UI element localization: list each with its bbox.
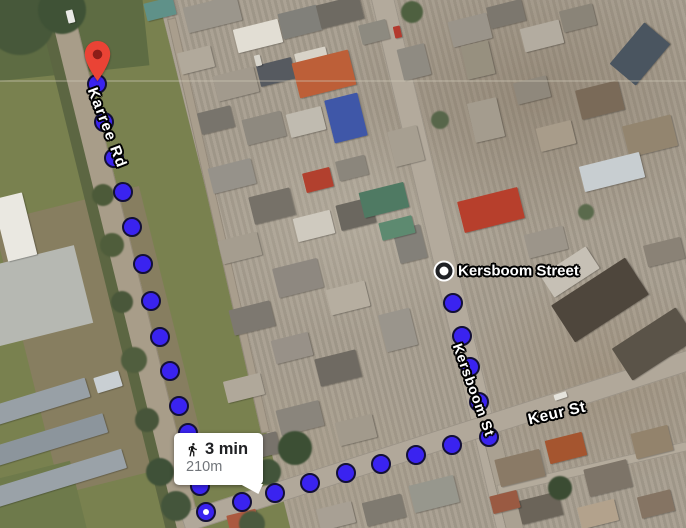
- route-dot: [232, 492, 252, 512]
- tree: [100, 233, 124, 257]
- destination-pin-icon[interactable]: [84, 41, 111, 81]
- route-turn-dot: [196, 502, 216, 522]
- tree: [401, 1, 423, 23]
- route-dot: [371, 454, 391, 474]
- tree: [161, 491, 191, 521]
- poi-label-kersboom-street[interactable]: Kersboom Street: [458, 263, 579, 280]
- route-origin-marker[interactable]: [436, 263, 453, 280]
- tree: [121, 347, 147, 373]
- route-dot: [336, 463, 356, 483]
- route-dot: [300, 473, 320, 493]
- route-dot: [265, 483, 285, 503]
- map-canvas[interactable]: Karree Rd Kersboom St Keur St Kersboom S…: [0, 0, 686, 528]
- route-dot: [113, 182, 133, 202]
- route-dot: [406, 445, 426, 465]
- route-dot: [133, 254, 153, 274]
- route-dot: [122, 217, 142, 237]
- walking-person-icon: [185, 441, 200, 458]
- route-distance: 210m: [174, 459, 263, 475]
- tree: [135, 408, 159, 432]
- tree: [111, 291, 133, 313]
- route-dot: [442, 435, 462, 455]
- tree: [92, 184, 114, 206]
- route-dot: [443, 293, 463, 313]
- route-info-bubble[interactable]: 3 min 210m: [174, 433, 263, 485]
- route-dot: [160, 361, 180, 381]
- route-dot: [141, 291, 161, 311]
- tree: [146, 458, 174, 486]
- tree: [431, 111, 449, 129]
- tree: [548, 476, 572, 500]
- tree: [278, 431, 312, 465]
- tree: [578, 204, 594, 220]
- route-duration: 3 min: [205, 440, 248, 459]
- route-dot: [169, 396, 189, 416]
- route-dot: [150, 327, 170, 347]
